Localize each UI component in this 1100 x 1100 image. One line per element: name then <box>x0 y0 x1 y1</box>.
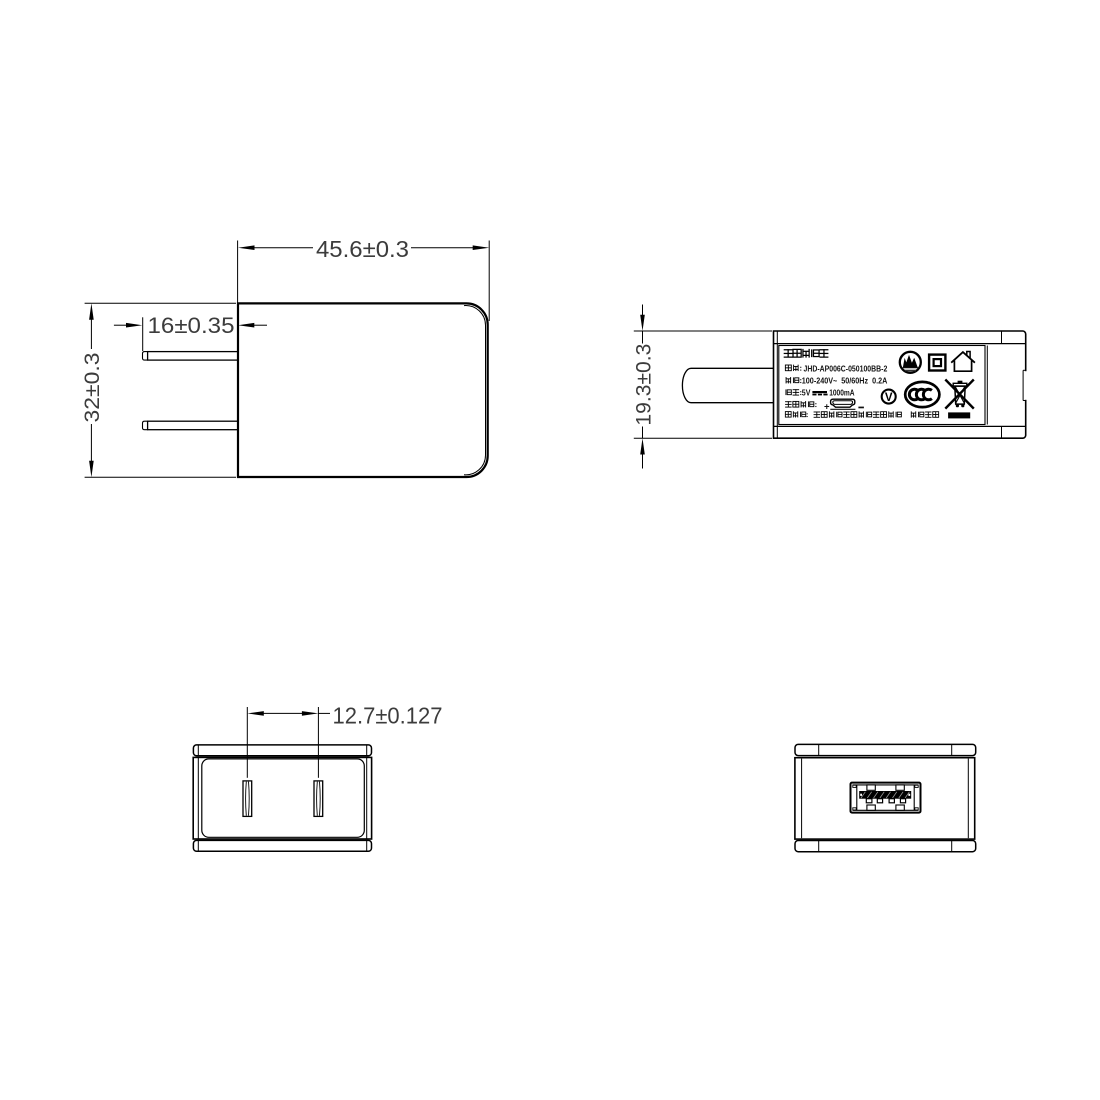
svg-text:45.6±0.3: 45.6±0.3 <box>316 236 409 262</box>
svg-text:12.7±0.127: 12.7±0.127 <box>333 703 443 729</box>
svg-text:+: + <box>824 401 830 412</box>
svg-text:16±0.35: 16±0.35 <box>148 313 235 338</box>
svg-text:32±0.3: 32±0.3 <box>80 352 104 422</box>
svg-text:100-240V~ 50/60Hz 0.2A: 100-240V~ 50/60Hz 0.2A <box>802 375 888 385</box>
svg-text:JHD-AP006C-050100BB-2: JHD-AP006C-050100BB-2 <box>804 363 888 373</box>
svg-text:V: V <box>885 392 893 404</box>
svg-text:5V: 5V <box>802 387 811 397</box>
svg-text:19.3±0.3: 19.3±0.3 <box>632 344 656 426</box>
svg-text:1000mA: 1000mA <box>829 387 854 397</box>
